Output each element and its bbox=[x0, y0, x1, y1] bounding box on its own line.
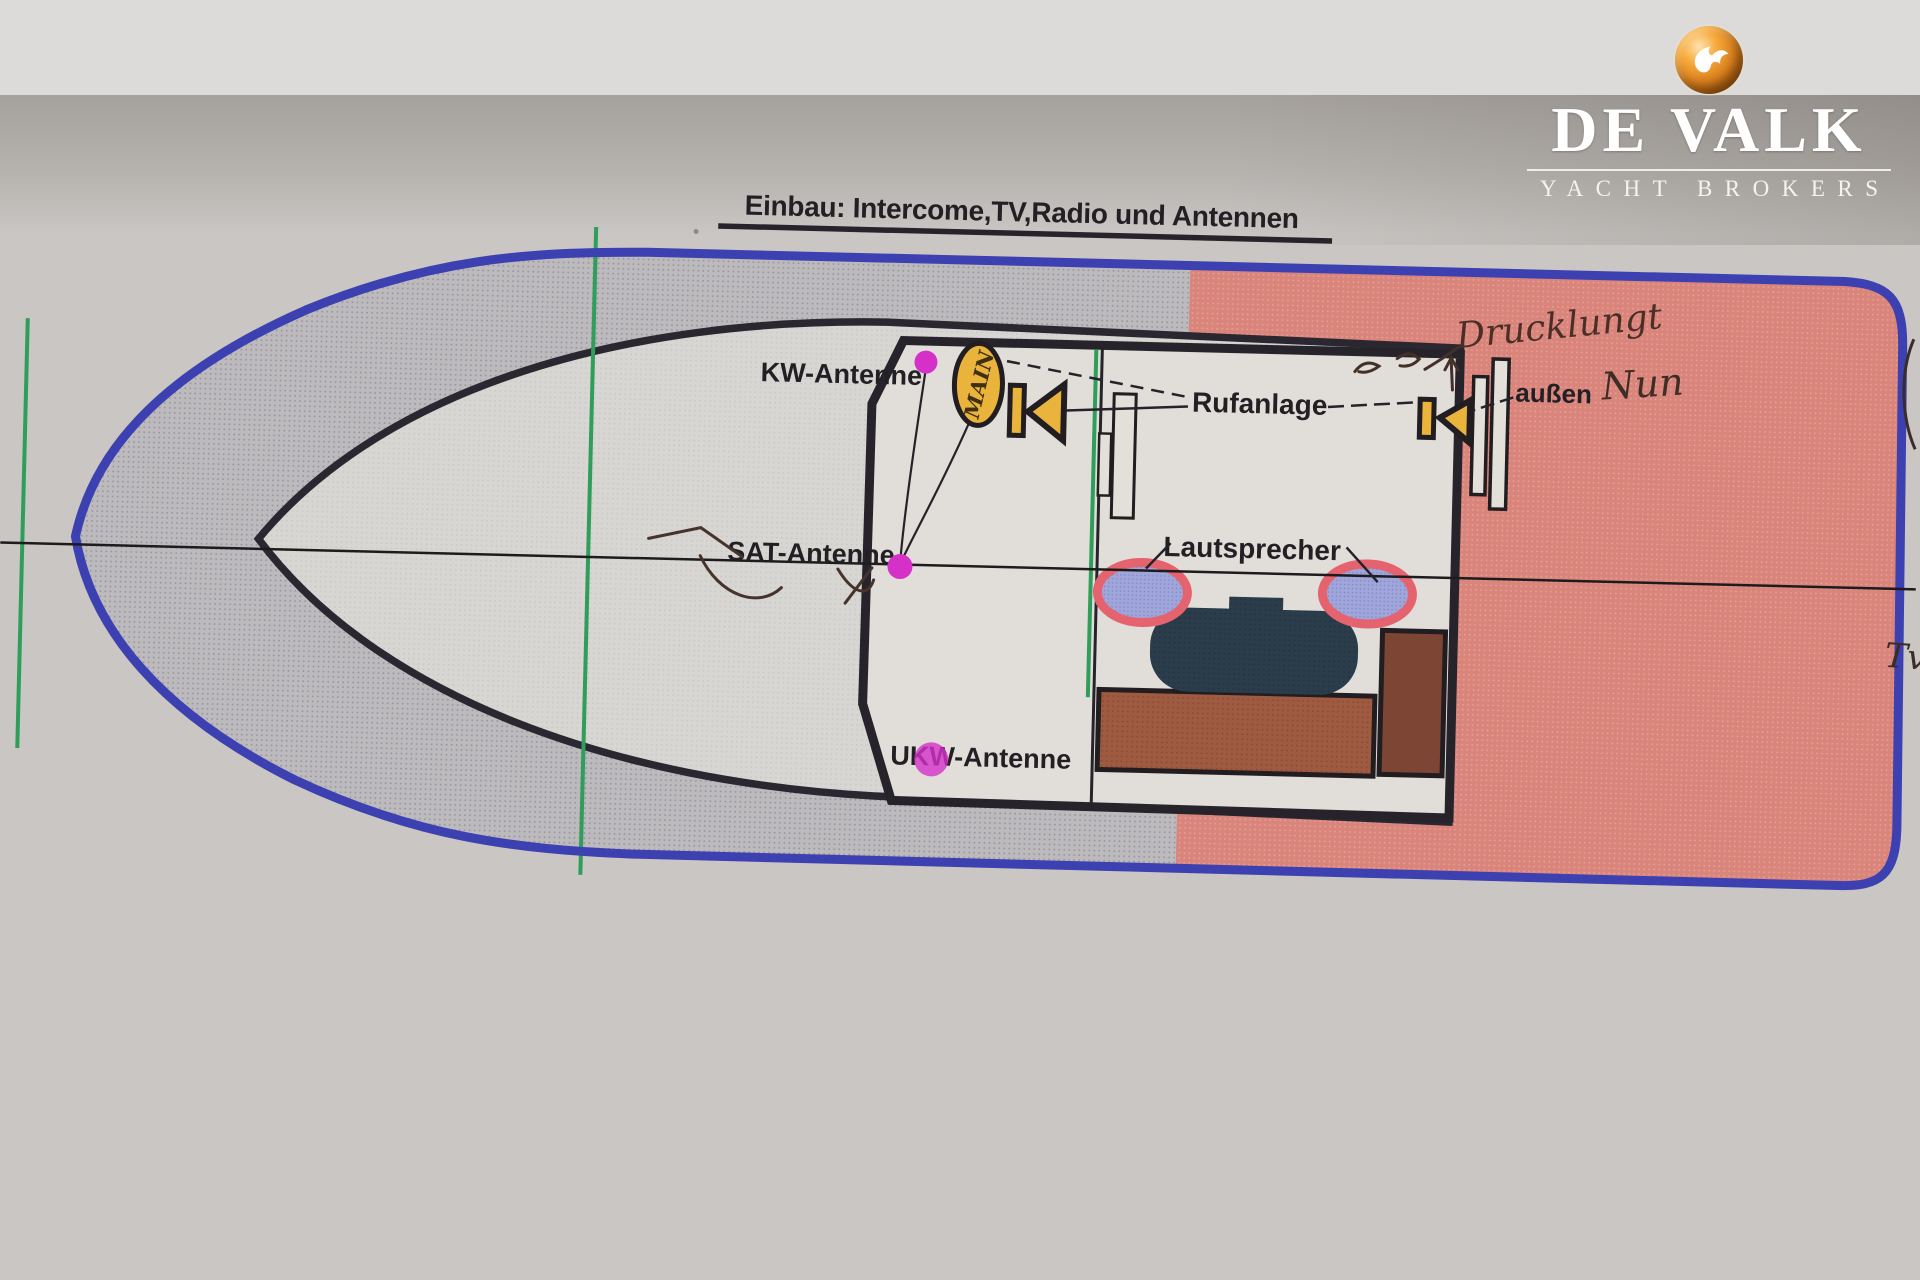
saloon-table bbox=[1149, 607, 1359, 696]
equipment-bar-2 bbox=[1098, 433, 1112, 495]
antenna-bar-outer-2 bbox=[1490, 359, 1510, 509]
speaker-icon-left-bar bbox=[1009, 385, 1024, 435]
handwriting-nun: Nun bbox=[1599, 360, 1685, 409]
label-aussen: außen bbox=[1515, 378, 1592, 410]
handwriting-margin-tv: Tv bbox=[1883, 636, 1920, 679]
bench-seat-aft bbox=[1097, 689, 1375, 776]
equipment-bar-1 bbox=[1111, 394, 1136, 519]
label-rufanlage: Rufanlage bbox=[1192, 387, 1328, 421]
scanned-drawing-group: Einbau: Intercome,TV,Radio und Antennen bbox=[0, 172, 1920, 908]
label-kw-antenna: KW-Antenne bbox=[760, 357, 922, 391]
falcon-sphere-icon bbox=[1675, 26, 1743, 94]
label-sat-antenna: SAT-Antenne bbox=[727, 536, 895, 570]
paper-speck bbox=[694, 229, 699, 234]
bench-seat-side bbox=[1379, 630, 1445, 775]
logo-tagline-text: YACHT BROKERS bbox=[1523, 176, 1895, 202]
speaker-icon-right-bar bbox=[1419, 399, 1434, 437]
logo-divider bbox=[1527, 169, 1891, 171]
logo-brand-text: DE VALK bbox=[1523, 98, 1895, 162]
green-frame-line-bow bbox=[17, 318, 28, 748]
antenna-bar-outer-1 bbox=[1471, 376, 1488, 494]
label-lautsprecher: Lautsprecher bbox=[1163, 531, 1341, 566]
devalk-logo: DE VALK YACHT BROKERS bbox=[1523, 26, 1895, 202]
falcon-bird-icon bbox=[1685, 36, 1733, 84]
